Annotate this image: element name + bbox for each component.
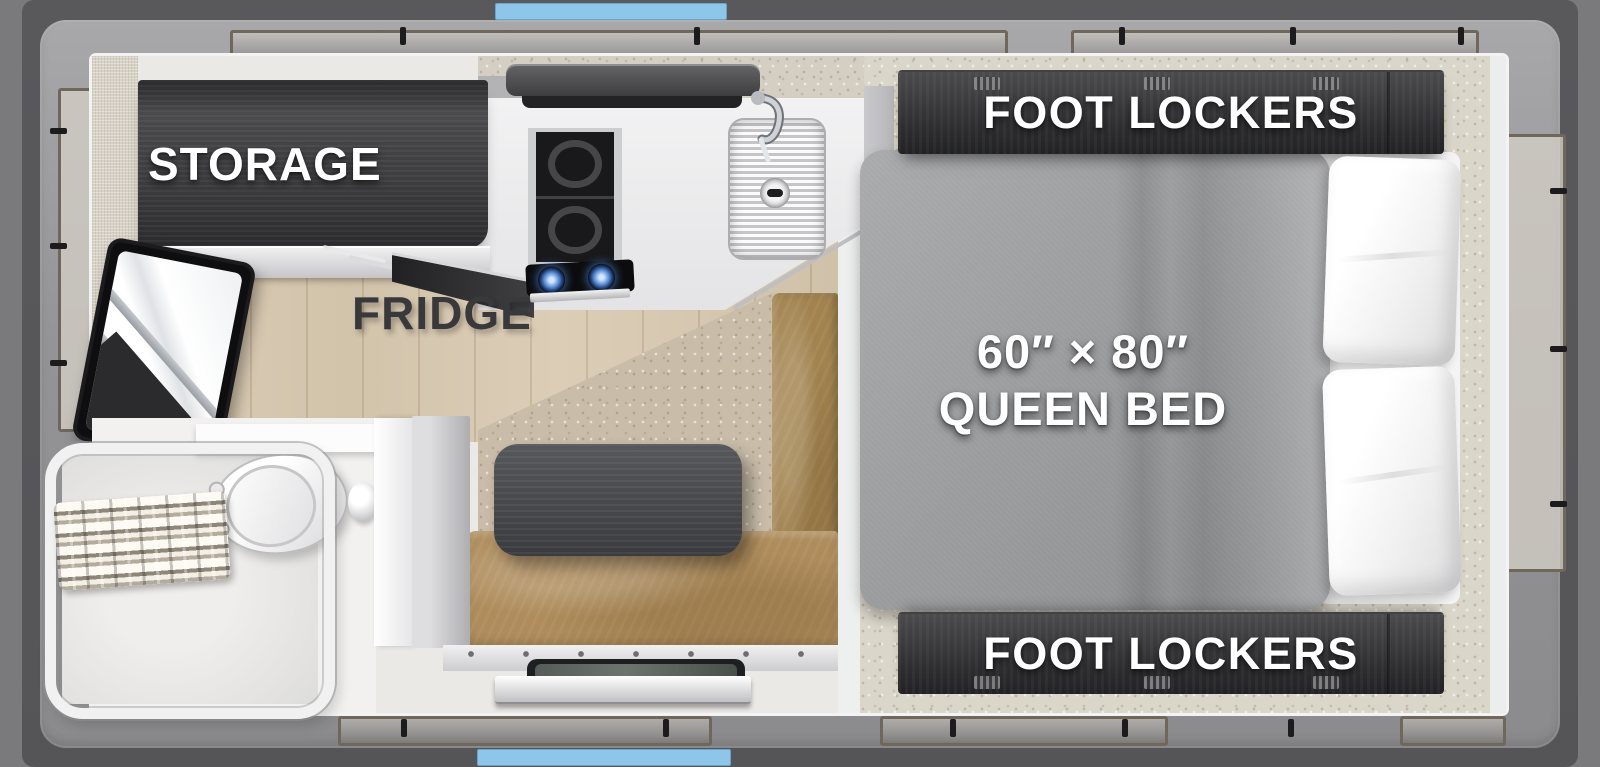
storage-cabinet: STORAGE — [138, 80, 488, 248]
pillow — [1322, 366, 1462, 596]
foot-lockers-top-label: FOOT LOCKERS — [983, 87, 1359, 139]
burner-flame-icon — [537, 266, 565, 294]
entry-step-plate — [495, 676, 751, 704]
window-latch-icon — [50, 360, 67, 366]
window-bottom-left — [338, 716, 712, 746]
window-latch-icon — [401, 719, 407, 737]
range-hood-vent — [522, 96, 742, 108]
sink-drain-icon — [760, 178, 790, 208]
window-latch-icon — [1550, 346, 1567, 352]
pillow — [1322, 156, 1461, 366]
foot-lockers-bottom-label: FOOT LOCKERS — [983, 628, 1359, 680]
roof-accent-bottom — [477, 749, 731, 766]
pillow-crease — [1337, 249, 1448, 263]
range-hood — [506, 64, 760, 96]
oven-burner-ring-icon — [548, 140, 601, 188]
window-latch-icon — [50, 243, 67, 249]
bed-label: 60″ × 80″ QUEEN BED — [939, 323, 1227, 438]
locker-seam — [1387, 72, 1390, 154]
faucet-icon — [744, 90, 792, 166]
burner-flame-icon — [587, 263, 615, 291]
accordion-door — [53, 491, 231, 591]
fridge-label: FRIDGE — [352, 286, 532, 340]
foot-lockers-top: FOOT LOCKERS — [898, 70, 1444, 154]
window-latch-icon — [1458, 27, 1464, 45]
foot-lockers-bottom: FOOT LOCKERS — [898, 612, 1444, 694]
dinette-table — [494, 444, 742, 556]
oven-rack — [536, 199, 614, 263]
bed-size-label: 60″ × 80″ — [939, 323, 1227, 380]
window-latch-icon — [694, 27, 700, 45]
window-bottom-right — [1400, 716, 1506, 746]
bathroom-partition-wall — [374, 418, 412, 646]
window-latch-icon — [663, 719, 669, 737]
oven-rack — [536, 132, 614, 199]
oven — [528, 128, 622, 266]
window-top-right — [1071, 30, 1479, 59]
window-latch-icon — [1288, 719, 1294, 737]
camper-floorplan: STORAGE FRIDGE — [0, 0, 1600, 767]
window-latch-icon — [1290, 27, 1296, 45]
storage-label: STORAGE — [138, 137, 382, 191]
queen-bed-mattress: 60″ × 80″ QUEEN BED — [860, 150, 1330, 610]
locker-seam — [1387, 614, 1390, 694]
window-latch-icon — [1122, 719, 1128, 737]
drain-slot — [767, 189, 783, 197]
window-top-left — [230, 30, 1008, 59]
window-latch-icon — [50, 128, 67, 134]
window-latch-icon — [1550, 501, 1567, 507]
window-latch-icon — [950, 719, 956, 737]
flush-knob — [348, 482, 376, 522]
front-wall-ledge — [1490, 56, 1506, 713]
pillow-crease — [1336, 464, 1447, 485]
window-latch-icon — [400, 27, 406, 45]
bed-type-label: QUEEN BED — [939, 380, 1227, 437]
oven-burner-ring-icon — [548, 206, 601, 254]
roof-accent-top — [495, 3, 727, 20]
dinette-side-panel — [412, 416, 470, 648]
window-latch-icon — [1119, 27, 1125, 45]
window-latch-icon — [1550, 188, 1567, 194]
